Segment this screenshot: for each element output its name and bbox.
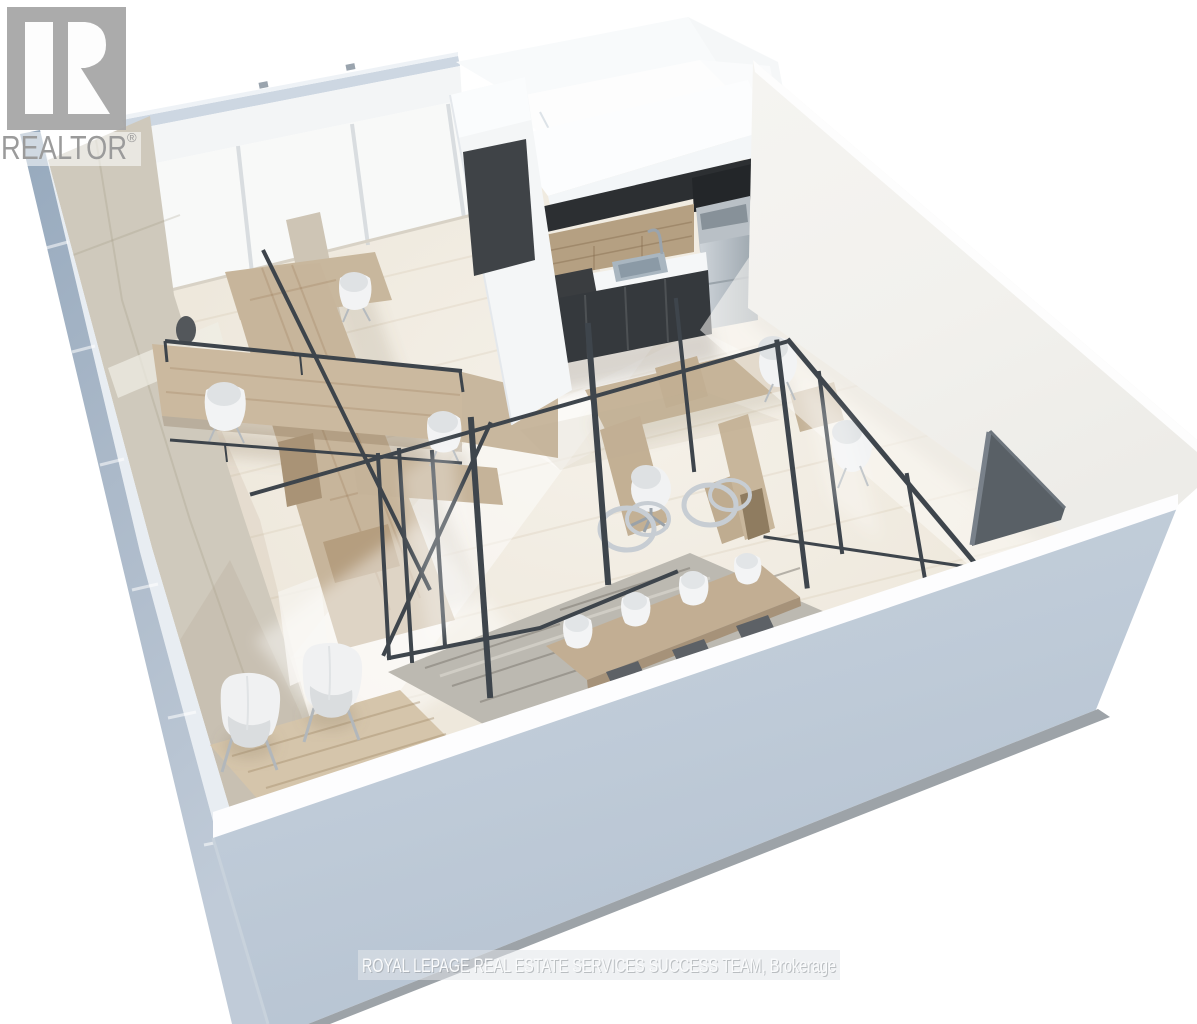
svg-text:REALTOR: REALTOR [1,129,127,166]
svg-text:ROYAL LEPAGE REAL ESTATE SERVI: ROYAL LEPAGE REAL ESTATE SERVICES SUCCES… [362,956,836,977]
svg-text:®: ® [127,130,137,145]
